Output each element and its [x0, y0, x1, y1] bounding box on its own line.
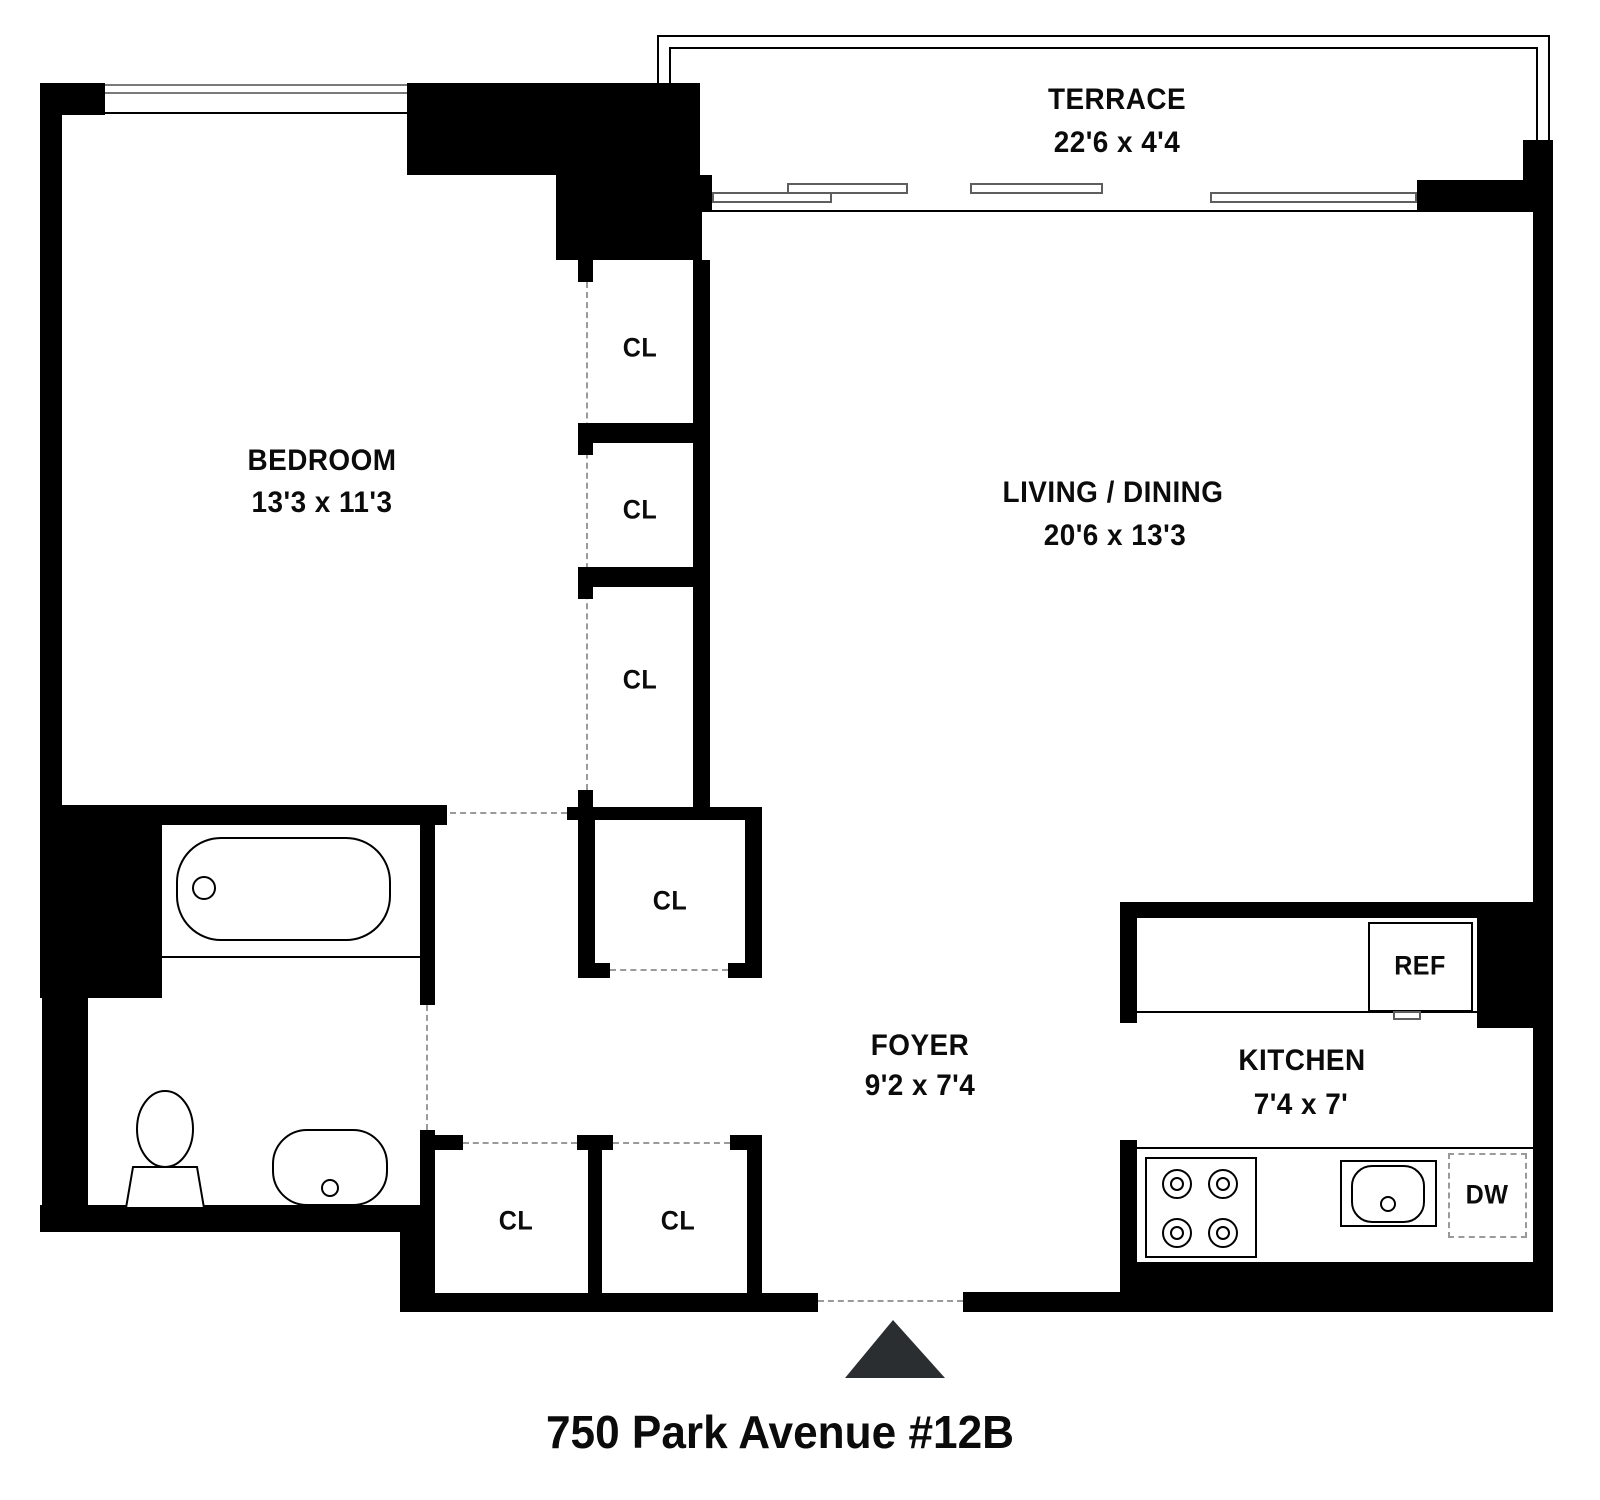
entry-arrow-icon: [845, 1320, 945, 1378]
refrigerator-label: REF: [1394, 951, 1446, 982]
foyer-label: FOYER: [871, 1029, 969, 1063]
kitchen-dimensions: 7'4 x 7': [1254, 1088, 1349, 1122]
kitchen-sink-basin: [1352, 1166, 1424, 1222]
closet-label: CL: [623, 333, 657, 364]
closet-label: CL: [661, 1206, 695, 1237]
floor-plan-title: 750 Park Avenue #12B: [546, 1405, 1014, 1459]
kitchen-label: KITCHEN: [1238, 1044, 1365, 1078]
bedroom-dimensions: 13'3 x 11'3: [252, 486, 393, 520]
toilet-tank: [126, 1167, 204, 1208]
closet-label: CL: [623, 665, 657, 696]
fixtures-layer: [0, 0, 1600, 1500]
closet-label: CL: [653, 886, 687, 917]
bathtub-drain: [193, 877, 215, 899]
living-dining-label: LIVING / DINING: [1003, 476, 1224, 510]
floor-plan: TERRACE 22'6 x 4'4 BEDROOM 13'3 x 11'3 L…: [0, 0, 1600, 1500]
terrace-dimensions: 22'6 x 4'4: [1054, 126, 1181, 160]
bedroom-label: BEDROOM: [248, 444, 397, 478]
living-dining-dimensions: 20'6 x 13'3: [1044, 519, 1187, 553]
closet-label: CL: [499, 1206, 533, 1237]
foyer-dimensions: 9'2 x 7'4: [865, 1069, 976, 1103]
dishwasher-label: DW: [1466, 1180, 1509, 1211]
closet-label: CL: [623, 495, 657, 526]
kitchen-sink-drain: [1381, 1197, 1395, 1211]
terrace-label: TERRACE: [1048, 83, 1186, 117]
bathroom-sink-drain: [322, 1180, 338, 1196]
stove-burners: [1163, 1170, 1237, 1247]
toilet-bowl: [137, 1091, 193, 1167]
